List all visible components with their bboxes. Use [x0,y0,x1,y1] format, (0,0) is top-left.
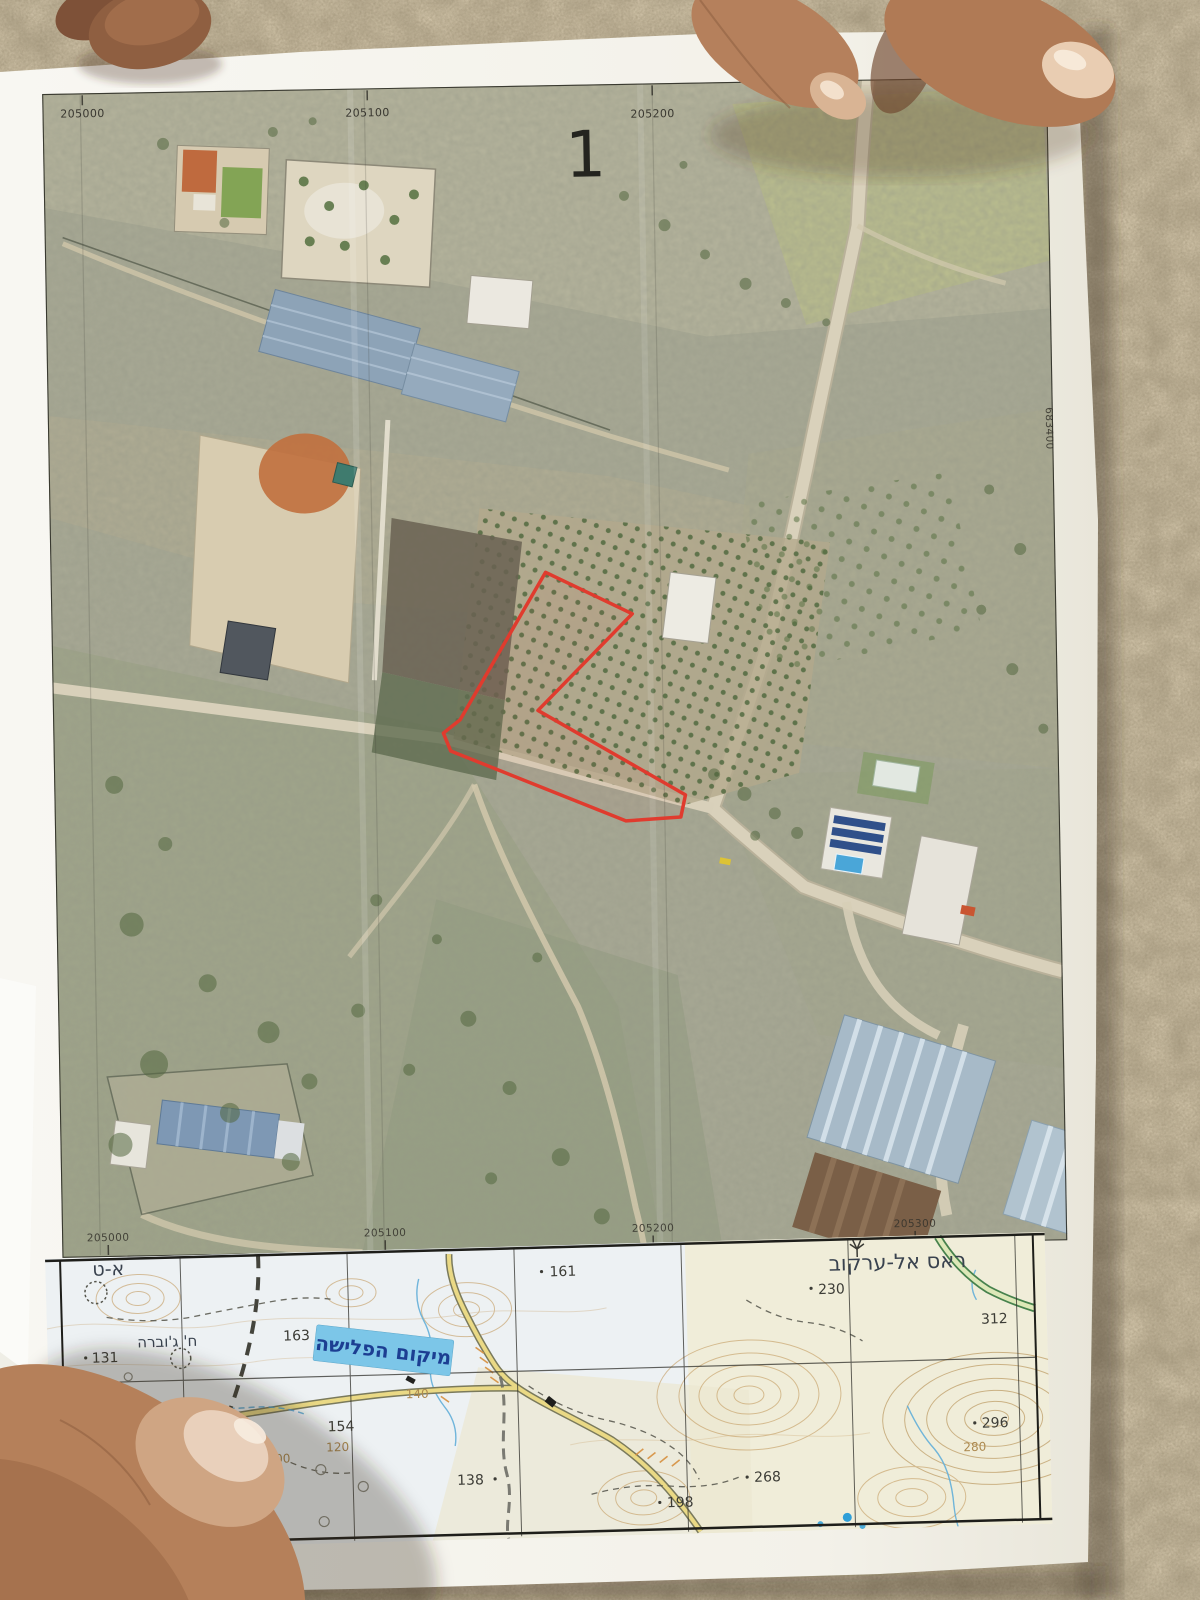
place-label-kh-jubara: ח' ג'וברה [137,1332,197,1352]
grid-label-bottom-205300: 205300 [894,1218,937,1231]
satellite-map: 205000 205100 205200 205000 205100 20520… [42,75,1123,1324]
grid-label-bottom-205100: 205100 [364,1227,407,1240]
grid-label-top-205200: 205200 [630,107,675,121]
grid-label-bottom-205200: 205200 [632,1222,675,1235]
grid-label-top-205000: 205000 [60,107,105,121]
contour-label-140: 140 [406,1387,429,1402]
spot-height-268: 268 [754,1469,781,1486]
house-solar-pool [821,807,892,878]
spot-height-163: 163 [283,1328,310,1345]
photo-of-printed-map: 205000 205100 205200 205000 205100 20520… [0,0,1200,1600]
sheet-number-label: 1 [565,118,607,193]
spot-height-198: 198 [667,1495,694,1512]
water-tank [333,463,357,487]
spot-height-161: 161 [549,1264,576,1281]
white-building-2 [662,572,716,643]
place-label-a-t: א-ט [92,1258,124,1281]
spot-height-138: 138 [457,1472,484,1489]
white-building [467,275,533,328]
grid-label-top-205100: 205100 [345,106,390,120]
orange-roof-building [182,150,217,193]
spot-height-296: 296 [982,1415,1009,1432]
grid-label-bottom-205000: 205000 [87,1232,130,1245]
spot-height-312: 312 [981,1311,1008,1328]
contour-label-280: 280 [963,1440,986,1455]
spot-height-230: 230 [818,1281,845,1298]
dark-roof-building [220,621,276,680]
place-label-ras-al-arqub: ראס אל-ערקוב [828,1248,966,1276]
spot-height-154: 154 [327,1419,354,1436]
